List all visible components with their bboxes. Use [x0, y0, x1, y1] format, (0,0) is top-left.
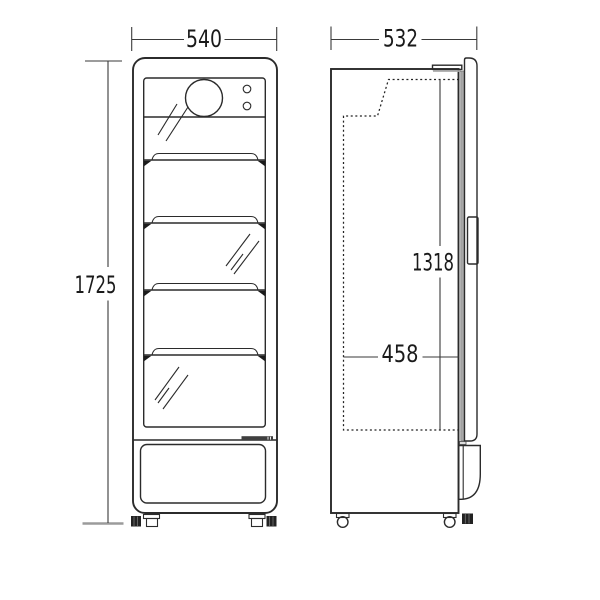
caster-left — [144, 515, 160, 527]
side-caster-rear — [444, 514, 457, 528]
dimension-front-width: 540 — [132, 25, 277, 53]
rear-foot — [462, 514, 473, 525]
dimension-interior-height: 1318 — [412, 80, 454, 431]
compressor-cover — [459, 446, 481, 500]
shelf — [144, 154, 266, 167]
side-caster-front — [337, 514, 350, 528]
dimension-interior-depth: 458 — [344, 340, 460, 368]
door-bottom-trim — [242, 436, 274, 440]
front-door-frame — [144, 78, 266, 427]
side-door-panel — [465, 58, 478, 441]
indicator-lights — [243, 85, 251, 110]
thermostat-dial — [186, 80, 223, 117]
glass-reflection-middle — [226, 234, 259, 274]
foot-left — [131, 516, 141, 527]
front-feet-casters — [131, 515, 277, 527]
dimension-drawing: 540 532 1725 1318 458 — [0, 0, 600, 600]
caster-right — [249, 515, 265, 527]
dimension-side-depth: 532 — [331, 25, 477, 53]
front-width-label: 540 — [186, 25, 222, 53]
kick-panel — [141, 445, 266, 504]
bottom-hinge — [460, 442, 467, 445]
interior-depth-label: 458 — [382, 340, 419, 368]
indicator-light — [243, 85, 251, 93]
shelf — [144, 349, 266, 362]
glass-reflection-top — [158, 104, 188, 141]
drawing-canvas: 540 532 1725 1318 458 — [0, 0, 600, 600]
glass-reflection-bottom — [155, 367, 188, 409]
front-view — [131, 58, 277, 527]
side-depth-label: 532 — [383, 25, 418, 53]
side-view — [331, 58, 480, 527]
side-cabinet-outline — [331, 69, 459, 513]
shelf — [144, 284, 266, 297]
front-height-label: 1725 — [75, 271, 117, 299]
interior-height-label: 1318 — [412, 249, 454, 277]
foot-right — [267, 516, 277, 527]
indicator-light — [243, 102, 251, 110]
dimension-front-height: 1725 — [75, 61, 124, 524]
shelf — [144, 217, 266, 230]
